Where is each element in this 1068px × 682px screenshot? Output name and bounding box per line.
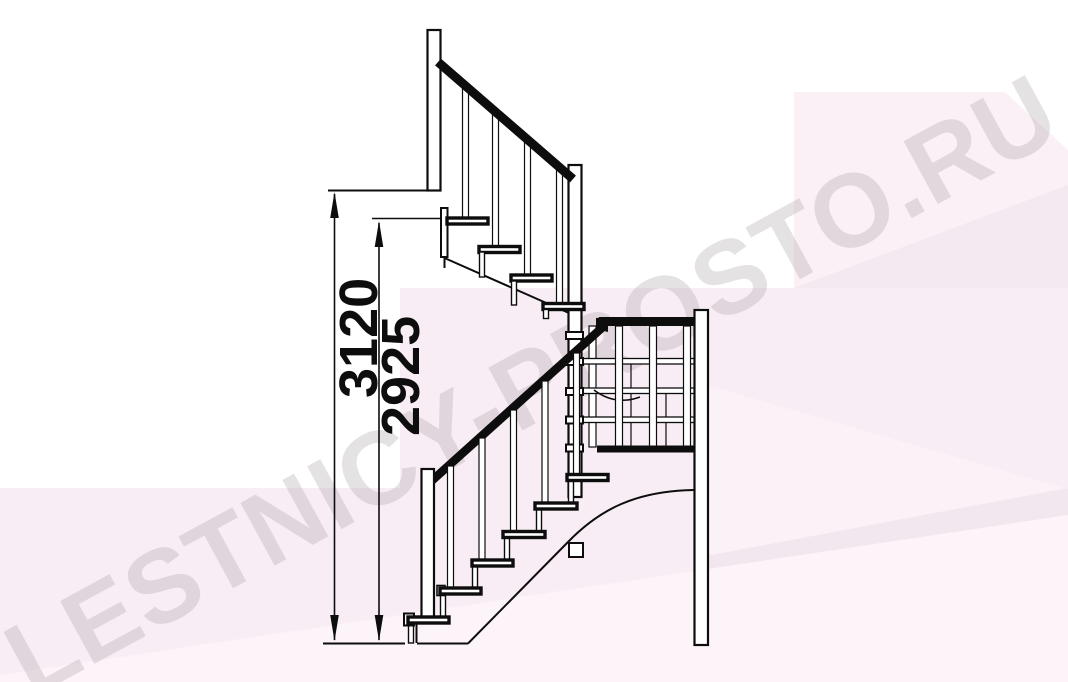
- baluster: [493, 112, 499, 247]
- winder-tread-edge: [583, 359, 695, 365]
- riser-bar: [537, 508, 542, 533]
- arrow-down: [330, 615, 339, 641]
- winder-baluster: [650, 326, 657, 447]
- baluster: [463, 86, 469, 218]
- tread: [535, 503, 577, 509]
- riser-bar: [569, 480, 574, 504]
- column-foot-block: [569, 543, 583, 557]
- riser-bar: [473, 565, 478, 589]
- column-bracket: [566, 332, 583, 339]
- tread: [447, 218, 488, 224]
- baluster: [574, 353, 580, 475]
- riser-bar: [480, 252, 485, 277]
- arrow-up: [375, 221, 384, 247]
- winder-platform-edge: [597, 446, 695, 453]
- arrow-down: [375, 615, 384, 641]
- tread: [503, 532, 545, 538]
- winder-tread-edge: [583, 388, 695, 394]
- riser-bar: [512, 281, 517, 305]
- tread: [472, 560, 513, 566]
- riser-bar: [441, 593, 446, 618]
- top-newel-post: [428, 30, 441, 191]
- winder-baluster: [616, 326, 623, 447]
- riser-bar: [544, 310, 549, 319]
- tread: [408, 617, 449, 623]
- baluster: [542, 381, 548, 503]
- baluster: [525, 140, 531, 275]
- staircase-elevation-svg: 3120 2925: [0, 0, 1068, 682]
- baluster: [557, 167, 563, 304]
- winder-baluster: [684, 326, 691, 447]
- baluster: [448, 466, 454, 588]
- tread-bracket: [441, 208, 448, 257]
- tread: [543, 304, 584, 310]
- winder-tread-edge: [583, 417, 695, 423]
- tread: [511, 275, 552, 281]
- upper-handrail: [438, 62, 573, 179]
- dimension-label-2925: 2925: [371, 316, 431, 436]
- right-post: [695, 310, 709, 645]
- tread: [440, 588, 481, 594]
- tread: [567, 475, 608, 481]
- bottom-newel-post: [422, 469, 435, 618]
- baluster: [511, 410, 517, 532]
- winder-handrail: [599, 317, 695, 326]
- riser-bar: [505, 537, 510, 561]
- arrow-up: [330, 192, 339, 218]
- staircase-drawing-canvas: LESTNICY-PROSTO.RU: [0, 0, 1068, 682]
- baluster: [479, 438, 485, 560]
